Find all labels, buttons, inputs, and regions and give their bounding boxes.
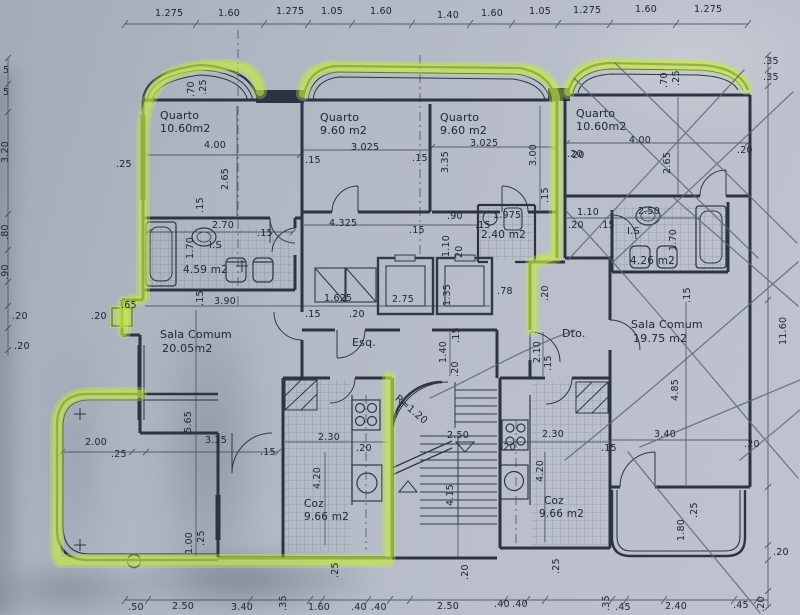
dim-label: 1.60: [308, 603, 330, 613]
dim-label: .78: [497, 287, 513, 297]
dim-label: .65: [121, 301, 137, 311]
dim-label: 1.60: [218, 9, 240, 19]
dim-label: .20: [14, 342, 30, 352]
dim-label: 9.60 m2: [440, 125, 487, 136]
dim-label: 2.65: [221, 168, 231, 190]
dim-label: 20: [455, 246, 465, 259]
dim-label: 4.00: [629, 136, 651, 146]
room-label-coz-dto: Coz: [544, 496, 564, 507]
dim-label: .40: [512, 600, 528, 610]
dim-label: .15: [599, 221, 615, 231]
dim-label: 1.275: [276, 7, 304, 17]
dim-label: .40: [351, 603, 367, 613]
dim-label: 3.40: [231, 603, 253, 613]
dim-label: 3.20: [1, 141, 11, 163]
dim-label: 1.00: [185, 532, 195, 554]
dim-label: 10.60m2: [160, 123, 211, 134]
room-label-sala-dto: Sala Comum: [631, 319, 703, 330]
dim-label: 3.90: [214, 297, 236, 307]
dim-label: .25: [672, 70, 682, 86]
dim-label: .15: [305, 310, 321, 320]
dim-label: .20: [500, 443, 516, 453]
dim-label: 1.70: [186, 237, 196, 259]
dim-label: 9.66 m2: [304, 512, 349, 523]
dim-label: .25: [116, 160, 132, 170]
dim-label: .15: [452, 327, 462, 343]
dim-label: 2.50: [437, 602, 459, 612]
dim-label: .80: [1, 224, 11, 240]
dim-label: 1.70: [669, 229, 679, 251]
dim-label: 2.40: [665, 602, 687, 612]
room-label-quarto-4: Quarto: [576, 108, 615, 119]
dim-label: .20: [568, 221, 584, 231]
dim-label: 3.00: [529, 144, 539, 166]
dim-label: 4.15: [446, 484, 456, 506]
dim-label: .20: [451, 361, 461, 377]
floor-plan-scan: 1.2751.601.2751.051.601.401.601.051.2751…: [0, 0, 800, 615]
dim-label: 1.10: [442, 235, 452, 257]
dim-label: .20: [12, 312, 28, 322]
room-label-quarto-3: Quarto: [440, 112, 479, 123]
dim-label: 3.025: [470, 139, 498, 149]
labels-layer: 1.2751.601.2751.051.601.401.601.051.2751…: [0, 0, 800, 615]
dim-label: 2.50: [447, 431, 469, 441]
dim-label: .90: [447, 212, 463, 222]
dim-label: .20: [91, 312, 107, 322]
unit-label-dto: Dto.: [562, 328, 586, 339]
dim-label: .15: [541, 187, 551, 203]
dim-label: .50: [128, 603, 144, 613]
dim-label: .40: [371, 603, 387, 613]
dim-label: .15: [196, 197, 206, 213]
dim-label: 2.50: [172, 602, 194, 612]
dim-label: 2.70: [212, 221, 234, 231]
dim-label: .15: [412, 154, 428, 164]
dim-label: .70: [660, 72, 670, 88]
dim-label: 1.60: [370, 7, 392, 17]
dim-label: .20: [356, 444, 372, 454]
dim-label: 5.65: [184, 411, 194, 433]
dim-label: 5: [3, 66, 9, 76]
dim-label: .25: [111, 450, 127, 460]
dim-label: .15: [305, 156, 321, 166]
dim-label: .20: [773, 548, 789, 558]
area-label-wc: 2.40 m2: [481, 230, 526, 241]
dim-label: .45: [733, 601, 749, 611]
dim-label: 1.275: [573, 6, 601, 16]
dim-label: 1.40: [439, 341, 449, 363]
dim-label: 4.20: [536, 460, 546, 482]
dim-label: .35: [602, 595, 612, 611]
dim-label: 4.325: [329, 219, 357, 229]
dim-label: .15: [601, 444, 617, 454]
stair-radius-note: R=1.20: [393, 394, 429, 427]
dim-label: .20: [349, 310, 365, 320]
dim-label: 1.05: [529, 7, 551, 17]
dim-label: 19.75 m2: [633, 333, 687, 344]
dim-label: .90: [1, 264, 11, 280]
dim-label: 1.80: [677, 519, 687, 541]
dim-label: .15: [196, 290, 206, 306]
dim-label: 3.35: [441, 151, 451, 173]
dim-label: 3.025: [351, 143, 379, 153]
dim-label: .20: [541, 285, 551, 301]
dim-label: .20: [737, 146, 753, 156]
dim-label: .25: [552, 558, 562, 574]
dim-label: 1.975: [493, 211, 521, 221]
dim-label: .25: [331, 562, 341, 578]
dim-label: 1.40: [437, 11, 459, 21]
dim-label: 1.60: [635, 5, 657, 15]
dim-label: .35: [279, 595, 289, 611]
dim-label: I.S: [627, 227, 640, 237]
dim-label: .40: [494, 600, 510, 610]
dim-label: 1.275: [155, 9, 183, 19]
dim-label: 2.30: [542, 430, 564, 440]
dim-label: .25: [199, 79, 209, 95]
dim-label: 1.60: [481, 9, 503, 19]
area-label-is-esq: 4.59 m2: [183, 265, 228, 276]
dim-label: .15: [260, 448, 276, 458]
dim-label: .70: [187, 81, 197, 97]
dim-label: .25: [690, 502, 700, 518]
room-label-quarto-1: Quarto: [160, 110, 199, 121]
dim-label: 3.40: [654, 430, 676, 440]
dim-label: 10.60m2: [576, 121, 627, 132]
dim-label: 4.85: [671, 379, 681, 401]
dim-label: 11.60: [779, 317, 789, 345]
dim-label: .15: [409, 226, 425, 236]
dim-label: 1.35: [443, 284, 453, 306]
dim-label: 2.30: [318, 433, 340, 443]
dim-label: .20: [757, 596, 767, 612]
dim-label: .35: [763, 57, 779, 67]
dim-label: 2.75: [392, 295, 414, 305]
dim-label: 1.10: [577, 208, 599, 218]
dim-label: 2.65: [663, 152, 673, 174]
dim-label: .20: [567, 150, 583, 160]
dim-label: 2.50: [638, 207, 660, 217]
room-label-sala-esq: Sala Comum: [160, 329, 232, 340]
dim-label: 2.00: [85, 438, 107, 448]
dim-label: .25: [197, 530, 207, 546]
dim-label: 4.00: [204, 141, 226, 151]
area-label-is-dto: 4.26 m2: [630, 256, 675, 267]
dim-label: 3.35: [205, 436, 227, 446]
dim-label: 9.60 m2: [320, 125, 367, 136]
dim-label: 1.05: [321, 7, 343, 17]
dim-label: 9.66 m2: [539, 509, 584, 520]
dim-label: .35: [763, 73, 779, 83]
dim-label: .15: [257, 229, 273, 239]
dim-label: .20: [744, 440, 760, 450]
dim-label: 2.10: [533, 341, 543, 363]
dim-label: 1.625: [324, 294, 352, 304]
dim-label: 20.05m2: [162, 343, 213, 354]
dim-label: 5: [3, 88, 9, 98]
dim-label: .20: [461, 564, 471, 580]
dim-label: .45: [615, 603, 631, 613]
unit-label-esq: Esq.: [352, 337, 376, 348]
room-label-quarto-2: Quarto: [320, 112, 359, 123]
dim-label: 1.275: [694, 5, 722, 15]
dim-label: I.S: [209, 241, 222, 251]
dim-label: 4.20: [313, 467, 323, 489]
dim-label: .15: [683, 287, 693, 303]
room-label-coz-esq: Coz: [304, 499, 324, 510]
dim-label: .15: [544, 355, 554, 371]
